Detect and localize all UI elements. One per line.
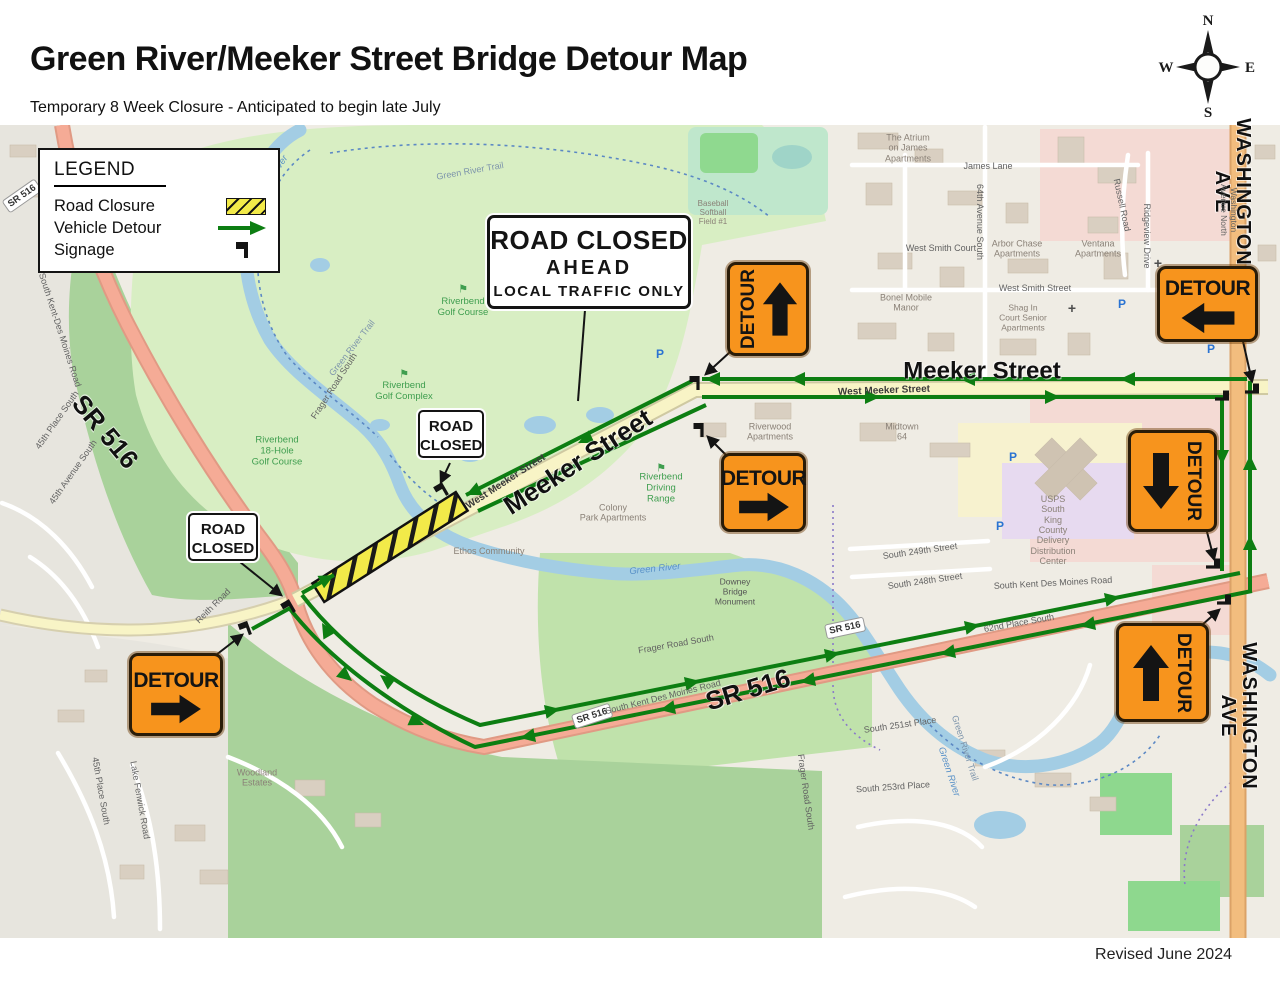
detour-sign-text: DETOUR [133,669,218,693]
compass-north: N [1203,13,1214,29]
sign-line: AHEAD [490,257,688,280]
detour-sign-up-arrow: DETOUR [1116,623,1209,722]
road-closed-ahead-sign: ROAD CLOSED AHEAD LOCAL TRAFFIC ONLY [487,215,691,309]
legend-item-road-closure: Road Closure [54,195,266,217]
detour-map-page: Green River/Meeker Street Bridge Detour … [0,0,1280,983]
sign-text: ROAD CLOSED [420,418,483,454]
detour-sign-left-arrow: DETOUR [1157,266,1258,342]
sign-line: LOCAL TRAFFIC ONLY [490,283,688,300]
up-arrow-icon [761,280,799,338]
legend-item-signage: Signage [54,239,266,261]
compass-east: E [1245,60,1255,76]
down-arrow-icon [1141,450,1181,512]
left-arrow-icon [1177,301,1239,335]
road-closed-sign: ROAD CLOSED [418,410,484,458]
road-closed-sign: ROAD CLOSED [188,513,258,561]
legend-label-signage: Signage [54,241,115,260]
compass-west: W [1159,60,1174,76]
right-arrow-icon [735,491,793,523]
legend-label-road-closure: Road Closure [54,197,155,216]
detour-sign-right-arrow: DETOUR [721,453,806,532]
compass-south: S [1204,105,1212,118]
detour-sign-text: DETOUR [1165,277,1250,301]
legend-title: LEGEND [54,159,266,181]
compass-rose: N E S W [1158,12,1258,118]
legend-label-vehicle-detour: Vehicle Detour [54,219,161,238]
legend-rule [54,185,166,187]
signage-icon [216,241,266,259]
sign-text: ROAD CLOSED [192,521,255,557]
detour-sign-up-arrow: DETOUR [727,262,809,356]
right-arrow-icon [147,693,205,725]
legend-item-vehicle-detour: Vehicle Detour [54,217,266,239]
revision-date: Revised June 2024 [1095,946,1232,964]
detour-sign-text: DETOUR [1181,433,1205,529]
page-subtitle: Temporary 8 Week Closure - Anticipated t… [30,99,441,117]
detour-sign-right-arrow: DETOUR [129,653,223,736]
detour-sign-text: DETOUR [737,265,761,353]
page-title: Green River/Meeker Street Bridge Detour … [30,40,747,79]
detour-sign-text: DETOUR [721,467,806,491]
detour-sign-text: DETOUR [1171,626,1195,719]
road-closure-swatch [226,198,266,215]
map-canvas: SR 516 Meeker Street Meeker Street SR 51… [0,125,1280,938]
detour-arrow-icon [216,220,266,236]
sign-line: ROAD CLOSED [490,225,688,256]
up-arrow-icon [1131,642,1171,704]
legend: LEGEND Road Closure Vehicle Detour Signa… [38,148,280,273]
detour-sign-down-arrow: DETOUR [1128,430,1217,532]
